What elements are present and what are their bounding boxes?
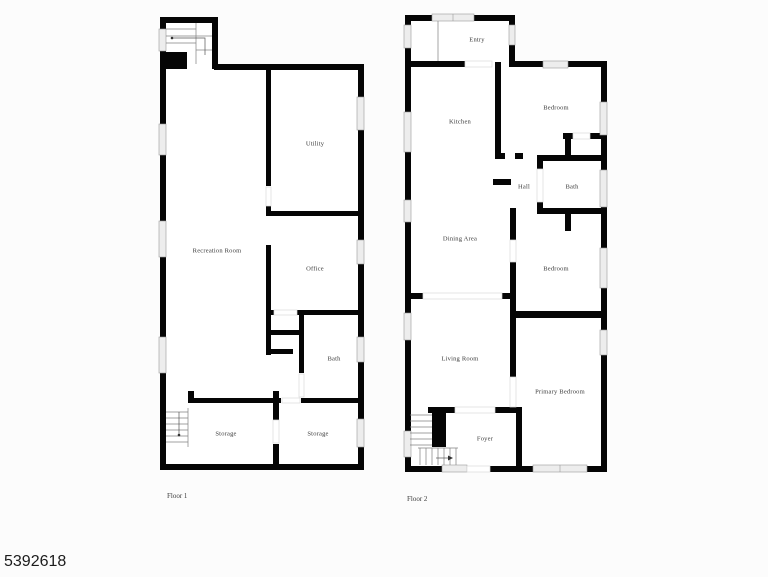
room-label-bath-floor2: Bath	[565, 184, 578, 191]
floor2-caption: Floor 2	[407, 495, 427, 503]
room-label-bedroom-2: Bedroom	[543, 266, 569, 273]
room-label-storage-2: Storage	[307, 431, 328, 438]
photo-id: 5392618	[4, 553, 66, 571]
room-label-dining-area: Dining Area	[443, 236, 477, 243]
room-label-bedroom-1: Bedroom	[543, 105, 569, 112]
room-label-primary-bedroom: Primary Bedroom	[535, 389, 585, 396]
floor2-floor-area	[408, 18, 604, 467]
room-label-living-room: Living Room	[441, 356, 478, 363]
room-label-office: Office	[306, 266, 324, 273]
room-label-hall: Hall	[518, 184, 530, 191]
room-label-utility: Utility	[306, 141, 324, 148]
room-label-entry: Entry	[469, 37, 484, 44]
floor1-caption: Floor 1	[167, 492, 187, 500]
floor1-plan	[159, 17, 364, 470]
room-label-recreation-room: Recreation Room	[193, 248, 242, 255]
room-label-bath-floor1: Bath	[327, 356, 340, 363]
floor2-plan	[404, 14, 607, 472]
room-label-storage-1: Storage	[215, 431, 236, 438]
room-label-kitchen: Kitchen	[449, 119, 471, 126]
floorplan-image: Recreation Room Utility Office Bath Stor…	[0, 0, 768, 577]
floorplan-drawing	[0, 0, 768, 577]
room-label-foyer: Foyer	[477, 436, 493, 443]
